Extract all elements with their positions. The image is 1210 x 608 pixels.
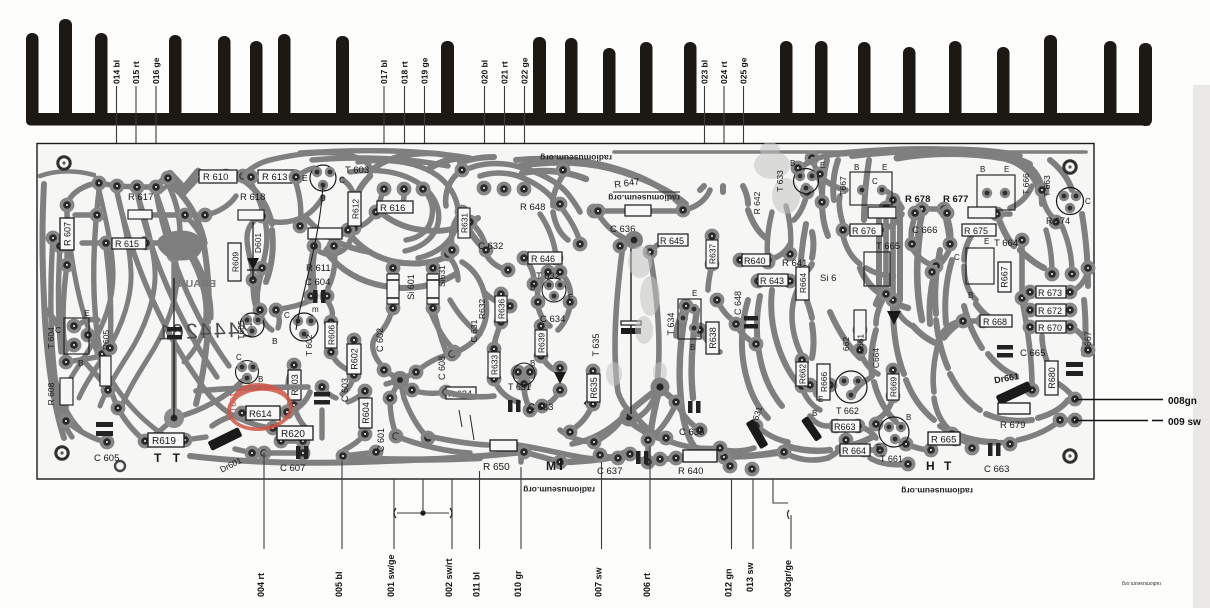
svg-text:radiomuseum.org: radiomuseum.org (901, 486, 973, 496)
svg-text:015 rt: 015 rt (131, 61, 141, 84)
svg-text:022 ge: 022 ge (520, 57, 530, 84)
svg-text:radiomuseum.org: radiomuseum.org (523, 485, 595, 495)
svg-text:021 rt: 021 rt (500, 61, 510, 84)
svg-text:016 ge: 016 ge (151, 57, 161, 84)
svg-text:010 gr: 010 gr (513, 570, 523, 597)
svg-text:024 rt: 024 rt (719, 61, 729, 84)
svg-text:014 bl: 014 bl (112, 60, 122, 84)
svg-text:001 sw/ge: 001 sw/ge (386, 554, 396, 597)
svg-text:007 sw: 007 sw (594, 566, 604, 597)
svg-text:008gn: 008gn (1168, 396, 1197, 407)
svg-text:003gr/ge: 003gr/ge (783, 560, 793, 597)
svg-text:011 bl: 011 bl (472, 572, 482, 597)
svg-text:006 rt: 006 rt (642, 573, 652, 597)
svg-text:017 bl: 017 bl (379, 60, 389, 84)
svg-text:019 ge: 019 ge (420, 57, 430, 84)
svg-text:013 sw: 013 sw (745, 561, 755, 592)
svg-text:018 rt: 018 rt (400, 61, 410, 84)
svg-text:020 bl: 020 bl (480, 60, 490, 84)
svg-text:005 bl: 005 bl (334, 571, 344, 597)
svg-text:002 sw/rt: 002 sw/rt (444, 558, 454, 597)
svg-text:009 sw: 009 sw (1168, 417, 1201, 428)
svg-text:radiomuseum.org: radiomuseum.org (1122, 580, 1161, 586)
svg-text:023 bl: 023 bl (700, 60, 710, 84)
svg-text:004 rt: 004 rt (256, 573, 266, 597)
svg-text:012 gn: 012 gn (724, 568, 734, 597)
svg-text:025 ge: 025 ge (739, 57, 749, 84)
